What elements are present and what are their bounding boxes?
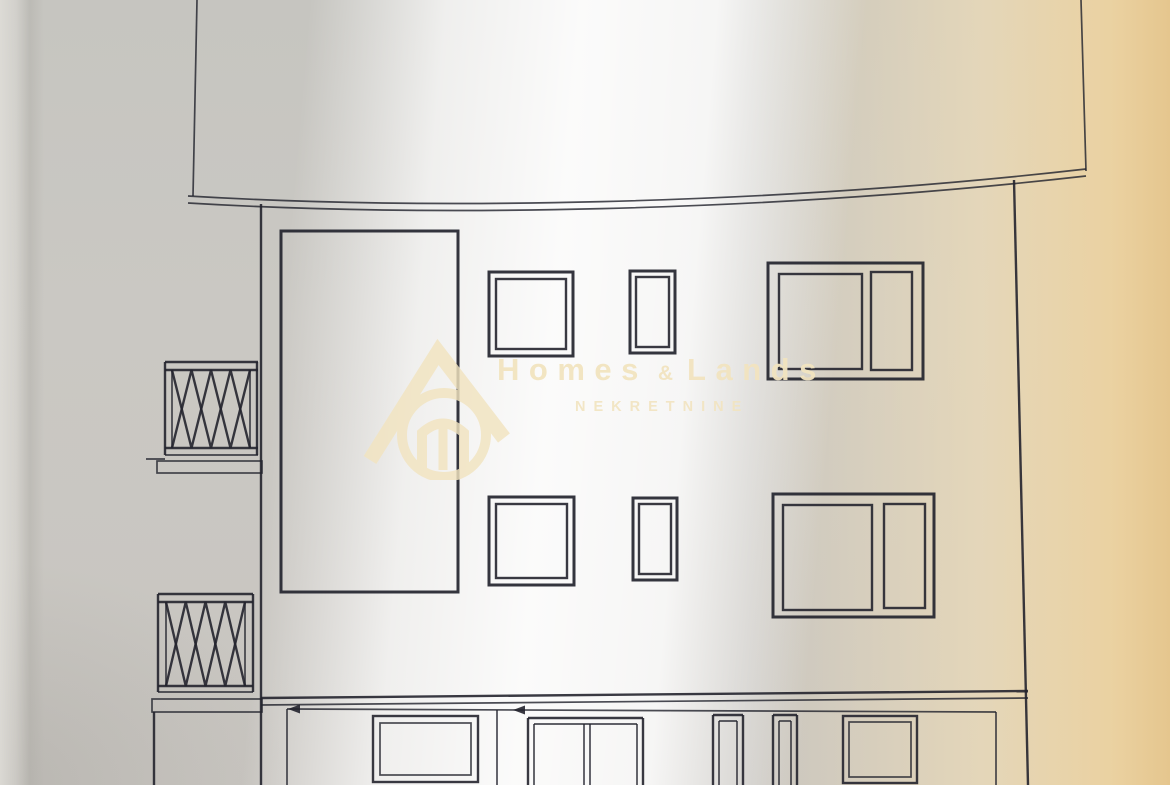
attic-right-edge: [1081, 0, 1086, 171]
ground-window-right-outer: [843, 716, 917, 783]
window-upper-double-outer: [768, 263, 923, 379]
window-middle-double-right-pane: [884, 504, 925, 608]
scanned-paper-background: Homes&Lands NEKRETNINE: [0, 0, 1170, 785]
window-middle-square-inner: [496, 504, 567, 578]
upper-balcony-lattice-zigzag-b: [172, 370, 250, 448]
ground-door-panel-2: [773, 715, 797, 785]
ground-window-right-inner: [849, 722, 911, 777]
window-middle-narrow-inner: [639, 504, 671, 574]
ground-window-left-outer: [373, 716, 478, 782]
attic-left-edge: [193, 0, 197, 196]
window-upper-double-left-pane: [779, 274, 862, 369]
window-middle-square-outer: [489, 497, 574, 585]
ground-floor: [287, 705, 996, 785]
window-upper-square-inner: [496, 279, 566, 349]
lower-balcony: [152, 594, 262, 785]
dimension-arrow-left: [288, 705, 300, 714]
lower-balcony-slab-hatched: [152, 699, 262, 712]
upper-balcony: [146, 362, 262, 473]
lower-balcony-lattice-zigzag-b: [166, 602, 245, 686]
eave-line-upper: [188, 169, 1086, 203]
dimension-arrow-mid: [513, 706, 525, 715]
upper-floor-windows: [489, 263, 923, 379]
ground-floor-lintel-line: [287, 709, 996, 712]
ground-double-door: [528, 718, 643, 785]
window-upper-square-outer: [489, 272, 573, 356]
lower-balcony-lattice-zigzag-a: [166, 602, 245, 686]
window-upper-double-right-pane: [871, 272, 912, 370]
window-upper-narrow-inner: [636, 277, 669, 347]
attic-story: [188, 0, 1086, 210]
facade-right-edge: [1014, 180, 1028, 785]
upper-balcony-lattice-zigzag-a: [172, 370, 250, 448]
window-middle-double-left-pane: [783, 505, 872, 610]
eave-line-lower: [188, 176, 1086, 210]
middle-floor-windows: [489, 494, 934, 617]
floor-line-lower: [261, 698, 1028, 705]
elevation-drawing: [0, 0, 1170, 785]
floor-line-upper: [261, 691, 1028, 698]
glass-block-grid-panel: [281, 231, 458, 592]
ground-window-left-inner: [380, 723, 471, 775]
ground-door-panel-1: [713, 715, 743, 785]
window-middle-double-outer: [773, 494, 934, 617]
upper-balcony-slab-hatched: [157, 461, 262, 473]
glass-block-grid: [281, 231, 458, 592]
